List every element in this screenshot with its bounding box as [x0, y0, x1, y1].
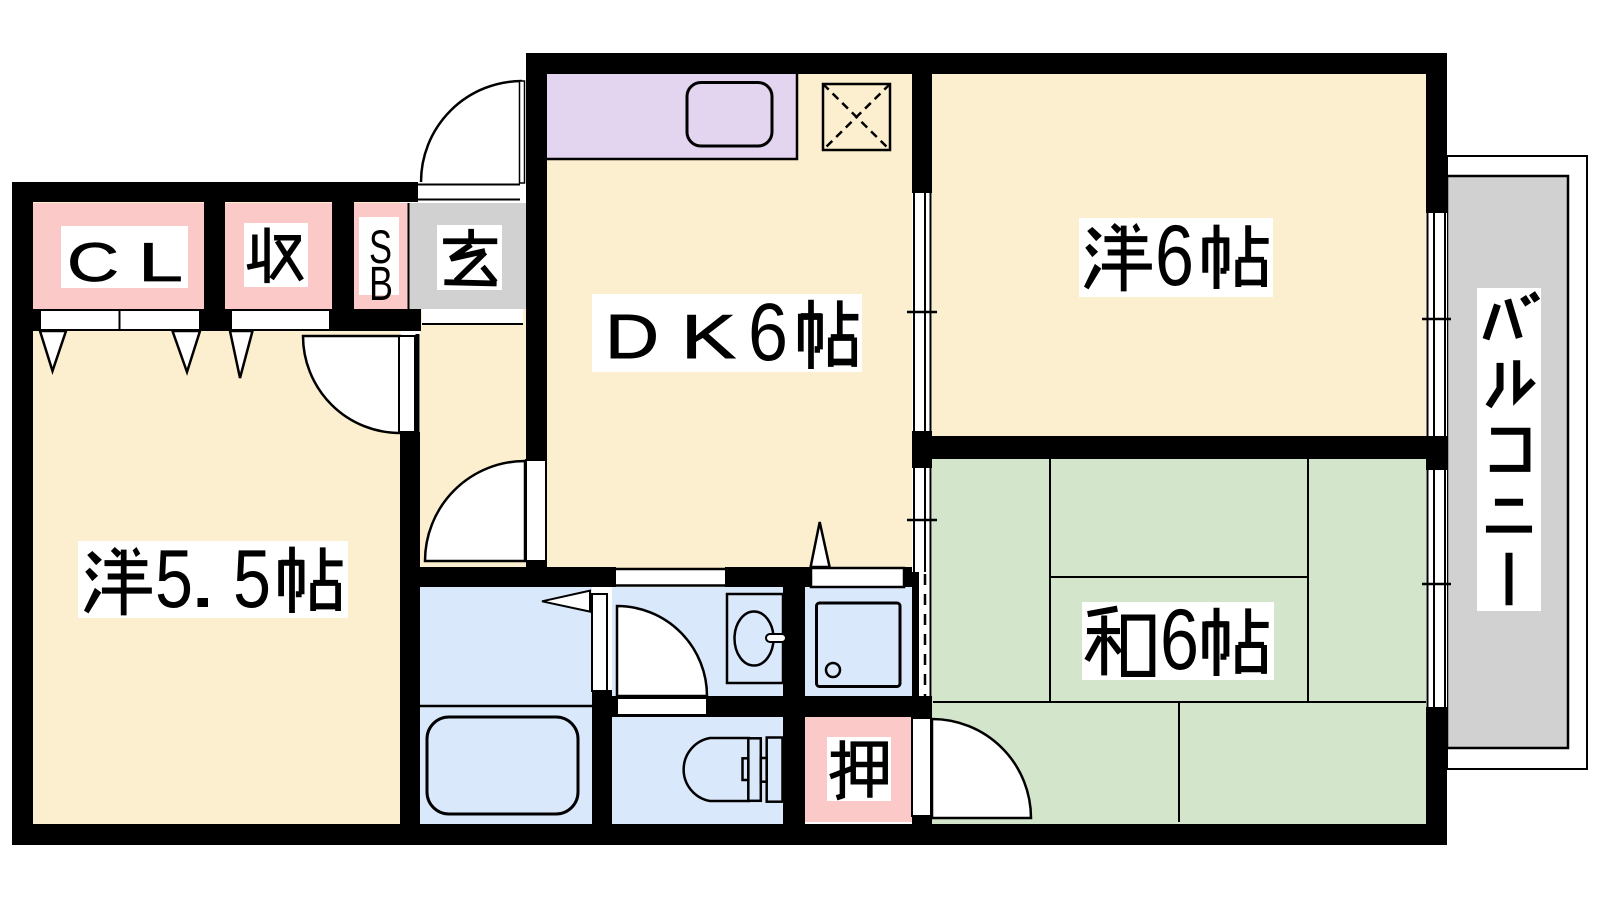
svg-text:L: L	[138, 231, 183, 293]
svg-text:6: 6	[1155, 208, 1194, 304]
svg-text:K: K	[681, 303, 736, 372]
svg-text:C: C	[67, 231, 119, 293]
svg-text:B: B	[369, 258, 393, 311]
svg-text:D: D	[605, 303, 659, 372]
svg-text:5: 5	[233, 532, 271, 625]
svg-text:6: 6	[748, 287, 788, 378]
svg-text:5: 5	[155, 532, 193, 625]
svg-text:6: 6	[1160, 592, 1199, 688]
